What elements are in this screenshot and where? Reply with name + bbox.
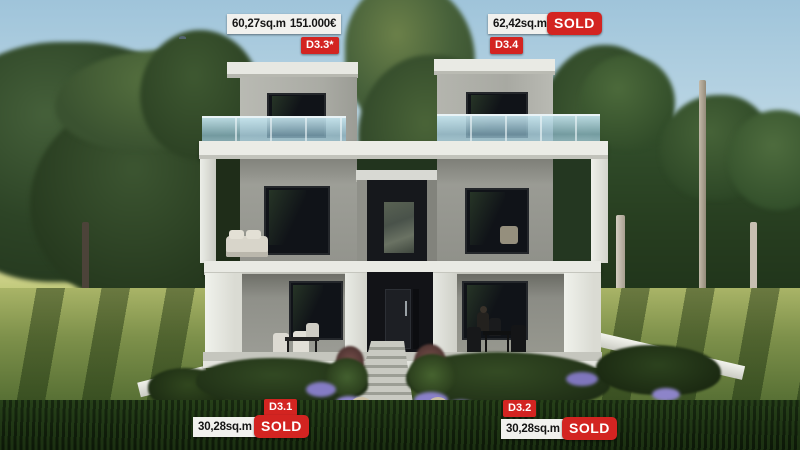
unit-info-d3.1: 30,28sq.m — [193, 417, 257, 437]
sold-badge-d3.2: SOLD — [562, 417, 617, 440]
ornamental-grass — [408, 354, 456, 396]
lavender-flowers — [566, 372, 598, 386]
unit-info-d3.4: 62,42sq.m — [488, 14, 552, 34]
front-door — [385, 289, 411, 349]
porch-pier — [345, 273, 367, 356]
sold-badge-d3.1: SOLD — [254, 415, 309, 438]
tall-trunk — [699, 80, 706, 300]
center-volume-side — [426, 180, 437, 262]
unit-info-d3.3: 60,27sq.m 151.000€ — [227, 14, 341, 34]
unit-badge-d3.1: D3.1 — [264, 399, 297, 416]
unit-info-d3.2: 30,28sq.m — [501, 419, 565, 439]
window-middle-right — [465, 188, 529, 254]
lavender-flowers — [306, 382, 336, 397]
unit-area: 30,28sq.m — [506, 419, 560, 439]
unit-badge-d3.4: D3.4 — [490, 37, 523, 54]
unit-price: 151.000€ — [290, 14, 336, 34]
floor-slab-upper — [199, 141, 608, 159]
porch-pier — [433, 273, 457, 356]
porch-pier — [564, 273, 601, 356]
property-render: 60,27sq.m 151.000€ D3.3* 62,42sq.m SOLD … — [0, 0, 800, 450]
balcony-couch — [226, 236, 268, 257]
balcony-chair — [500, 226, 518, 244]
unit-area: 62,42sq.m — [493, 14, 547, 34]
center-glass-door — [384, 202, 414, 253]
unit-area: 60,27sq.m — [232, 14, 286, 34]
door-sidelight — [413, 289, 419, 349]
corner-column-left — [200, 159, 216, 263]
roof-slab-left — [227, 62, 358, 78]
patio-table-right — [483, 331, 511, 335]
window-middle-left — [264, 186, 330, 255]
corner-column-right — [591, 159, 608, 263]
unit-badge-d3.3: D3.3* — [301, 37, 339, 54]
bird — [179, 36, 186, 39]
patio-table-left — [285, 337, 319, 341]
roof-slab-right — [434, 59, 555, 75]
foreground-grass — [0, 400, 800, 450]
glass-balustrade-right — [437, 114, 600, 144]
unit-badge-d3.2: D3.2 — [503, 400, 536, 417]
sold-badge-d3.4: SOLD — [547, 12, 602, 35]
unit-area: 30,28sq.m — [198, 417, 252, 437]
balcony-gap-right — [551, 159, 591, 262]
porch-pier — [205, 273, 242, 356]
